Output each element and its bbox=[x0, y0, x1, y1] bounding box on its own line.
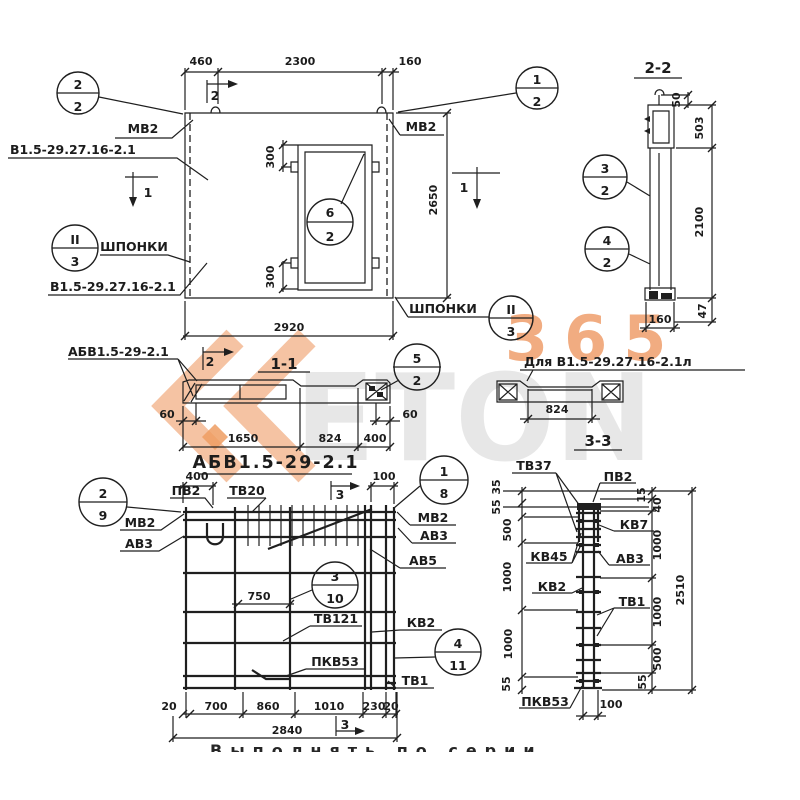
callout-2-9-top: 2 bbox=[99, 486, 108, 501]
dim-55-a: 55 bbox=[490, 499, 503, 514]
label-pkv53: ПКВ53 bbox=[311, 654, 359, 669]
dim-750: 750 bbox=[248, 590, 271, 603]
dim-2510: 2510 bbox=[674, 574, 687, 605]
label-av3-33: АВ3 bbox=[616, 551, 644, 566]
label-mv2-left: МВ2 bbox=[128, 121, 159, 136]
callout-4-2-bot: 2 bbox=[603, 255, 612, 270]
dim-47: 47 bbox=[696, 303, 709, 318]
label-pv2: ПВ2 bbox=[172, 483, 201, 498]
callout-2-9-bot: 9 bbox=[99, 508, 108, 523]
dim-300-top: 300 bbox=[264, 145, 277, 168]
callout-II-3-right-top: II bbox=[506, 302, 515, 317]
section-1-1-title: 1-1 bbox=[270, 355, 297, 373]
dashed-lines bbox=[190, 113, 387, 298]
callout-II-3-left-top: II bbox=[70, 232, 79, 247]
label-shponki-left: ШПОНКИ bbox=[100, 239, 168, 254]
dim-230: 230 bbox=[363, 700, 386, 713]
callout-6-2-top: 6 bbox=[326, 205, 335, 220]
dim-100-rebar: 100 bbox=[373, 470, 396, 483]
dim-1000-left-b: 1000 bbox=[502, 628, 515, 659]
dim-824: 824 bbox=[319, 432, 342, 445]
dim-503: 503 bbox=[693, 117, 706, 140]
dim-20-right: 20 bbox=[383, 700, 399, 713]
dim-400: 400 bbox=[364, 432, 387, 445]
dim-2300: 2300 bbox=[285, 55, 316, 68]
label-shponki-right: ШПОНКИ bbox=[409, 301, 477, 316]
label-kv7: КВ7 bbox=[620, 517, 648, 532]
dim-400-rebar: 400 bbox=[186, 470, 209, 483]
dim-60-left: 60 bbox=[159, 408, 175, 421]
dim-50: 50 bbox=[670, 92, 683, 108]
dim-40: 40 bbox=[651, 497, 664, 513]
cut-mark-1-right: 1 bbox=[460, 180, 469, 195]
label-abv-mark: АБВ1.5-29-2.1 bbox=[68, 344, 169, 359]
drawing-page: ETON 365 460 2300 160 2 МВ2 В1.5-29 bbox=[0, 0, 800, 800]
callout-II-3-right-bot: 3 bbox=[507, 324, 516, 339]
dim-35: 35 bbox=[490, 479, 503, 494]
callout-5-2-bot: 2 bbox=[413, 373, 422, 388]
dim-700: 700 bbox=[205, 700, 228, 713]
label-av3-rebar-left: АВ3 bbox=[125, 536, 153, 551]
callout-II-3-left-bot: 3 bbox=[71, 254, 80, 269]
callout-5-2-top: 5 bbox=[413, 351, 422, 366]
dim-500-left: 500 bbox=[501, 518, 514, 541]
dim-860: 860 bbox=[257, 700, 280, 713]
dim-1000-left-a: 1000 bbox=[501, 561, 514, 592]
callout-3-10-bot: 10 bbox=[326, 591, 344, 606]
cut-mark-3-bottom: 3 bbox=[341, 717, 350, 732]
callout-1-8-top: 1 bbox=[440, 464, 449, 479]
label-mv2-rebar-left: МВ2 bbox=[125, 515, 156, 530]
callout-2-2-top: 2 bbox=[74, 77, 83, 92]
technical-drawing: 460 2300 160 2 МВ2 В1.5-29.27.16-2.1 1 1… bbox=[0, 0, 800, 800]
callout-4-11-bot: 11 bbox=[449, 658, 466, 673]
dim-160-bottom: 160 bbox=[649, 313, 672, 326]
callout-1-2-bot: 2 bbox=[533, 94, 542, 109]
dim-100-33: 100 bbox=[600, 698, 623, 711]
panel-mark-bottom: В1.5-29.27.16-2.1 bbox=[50, 279, 176, 294]
callout-2-2-bot: 2 bbox=[74, 99, 83, 114]
cut-mark-2: 2 bbox=[211, 88, 220, 103]
dim-2650: 2650 bbox=[427, 184, 440, 215]
label-mv2-right: МВ2 bbox=[406, 119, 437, 134]
dim-500-right: 500 bbox=[651, 647, 664, 670]
dim-1650: 1650 bbox=[228, 432, 259, 445]
dim-1000-right-a: 1000 bbox=[651, 529, 664, 560]
section-3-3-title: 3-3 bbox=[584, 432, 611, 450]
dim-160: 160 bbox=[399, 55, 422, 68]
cut-mark-1-left: 1 bbox=[144, 185, 153, 200]
label-kv45: КВ45 bbox=[530, 549, 567, 564]
cut-mark-2b: 2 bbox=[206, 354, 215, 369]
label-tv37: ТВ37 bbox=[516, 458, 551, 473]
truncated-caption: Выполнять по серии bbox=[210, 741, 672, 752]
label-pkv53-33: ПКВ53 bbox=[521, 694, 569, 709]
callout-3-10-top: 3 bbox=[331, 569, 340, 584]
dim-2920: 2920 bbox=[274, 321, 305, 334]
label-mv2-rebar-right: МВ2 bbox=[418, 510, 449, 525]
rebar-bars bbox=[183, 505, 602, 690]
dim-60-right: 60 bbox=[402, 408, 418, 421]
dim-460: 460 bbox=[190, 55, 213, 68]
label-av3-rebar-right: АВ3 bbox=[420, 528, 448, 543]
callout-1-2-top: 1 bbox=[533, 72, 542, 87]
callout-3-2-bot: 2 bbox=[601, 183, 610, 198]
callout-4-2-top: 4 bbox=[603, 233, 612, 248]
dim-55-b: 55 bbox=[500, 676, 513, 691]
dim-2840: 2840 bbox=[272, 724, 303, 737]
label-tv1-33: ТВ1 bbox=[619, 594, 646, 609]
tick-marks bbox=[169, 68, 716, 742]
filled-shapes bbox=[129, 80, 672, 735]
dim-55-right: 55 bbox=[636, 674, 649, 689]
label-tv20: ТВ20 bbox=[229, 483, 265, 498]
panel-mark-top: В1.5-29.27.16-2.1 bbox=[10, 142, 136, 157]
label-tv121: ТВ121 bbox=[314, 611, 358, 626]
callout-1-8-bot: 8 bbox=[440, 486, 449, 501]
rebar-view-title: АБВ1.5-29-2.1 bbox=[192, 453, 359, 473]
dim-824-detail: 824 bbox=[546, 403, 569, 416]
thin-lines bbox=[8, 68, 745, 742]
label-av5: АВ5 bbox=[409, 553, 437, 568]
label-pv2-33: ПВ2 bbox=[604, 469, 633, 484]
dim-20-left: 20 bbox=[161, 700, 177, 713]
callout-6-2-bot: 2 bbox=[326, 229, 335, 244]
label-kv2-33: КВ2 bbox=[538, 579, 566, 594]
callout-4-11-top: 4 bbox=[454, 636, 463, 651]
dim-15: 15 bbox=[635, 487, 648, 502]
dim-2100: 2100 bbox=[693, 206, 706, 237]
label-dlya-mark: Для В1.5-29.27.16-2.1л bbox=[524, 354, 692, 369]
label-tv1: ТВ1 bbox=[402, 673, 429, 688]
callout-3-2-top: 3 bbox=[601, 161, 610, 176]
dim-300-bottom: 300 bbox=[264, 265, 277, 288]
section-2-2-title: 2-2 bbox=[644, 59, 671, 77]
dim-1010: 1010 bbox=[314, 700, 345, 713]
label-kv2: КВ2 bbox=[407, 615, 435, 630]
dim-1000-right-b: 1000 bbox=[651, 596, 664, 627]
cut-mark-3-top: 3 bbox=[336, 487, 345, 502]
